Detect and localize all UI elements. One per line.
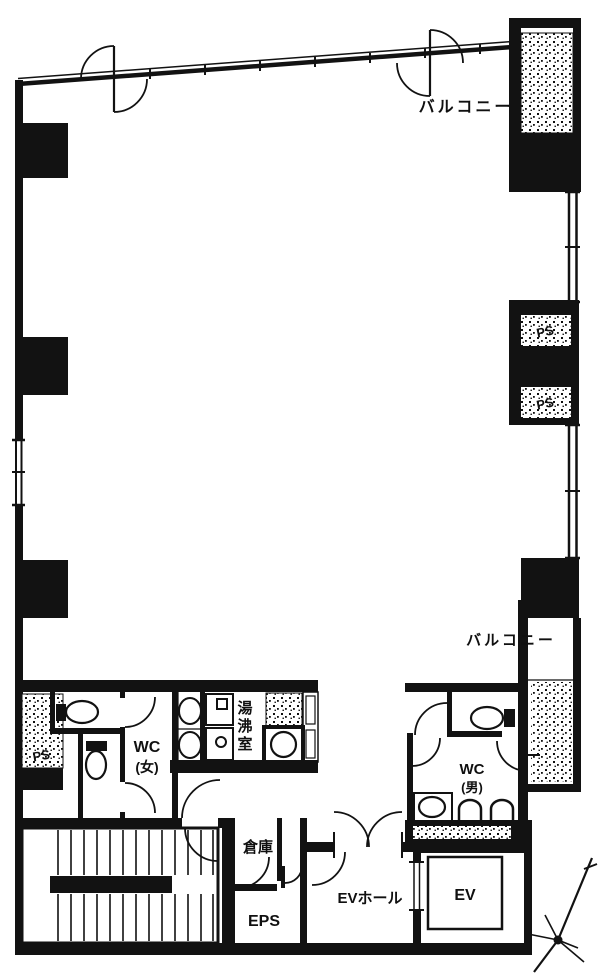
balcony-top-right	[509, 18, 581, 192]
wc-men-label: WC	[460, 761, 485, 778]
west-window	[12, 440, 25, 505]
kitchenette-label: 湯沸室	[236, 700, 253, 754]
floor-plan-svg: PS PS PS	[0, 0, 613, 980]
storage-label: 倉庫	[242, 838, 273, 856]
toilet-tank	[86, 741, 107, 751]
eps-label: EPS	[248, 913, 280, 930]
closet-door-leaf	[281, 866, 285, 888]
floor-plan-page: PS PS PS	[0, 0, 613, 980]
ev-hall-label: EVホール	[337, 890, 402, 907]
stair-landing-rail	[50, 876, 172, 893]
ev-label: EV	[454, 887, 476, 904]
wc-men-label-2: (男)	[461, 780, 483, 795]
toilet-tank	[56, 704, 66, 721]
ps-left-label: PS	[31, 747, 51, 765]
wc-women-label-2: (女)	[135, 759, 158, 775]
balcony-top-label: バルコニー	[419, 98, 514, 116]
sink-bowl	[271, 732, 296, 757]
wc-women-label: WC	[134, 739, 161, 756]
balcony-mid-label: バルコニー	[466, 632, 556, 649]
toilet-tank	[504, 709, 515, 727]
ps-shafts-east: PS PS	[509, 300, 579, 425]
